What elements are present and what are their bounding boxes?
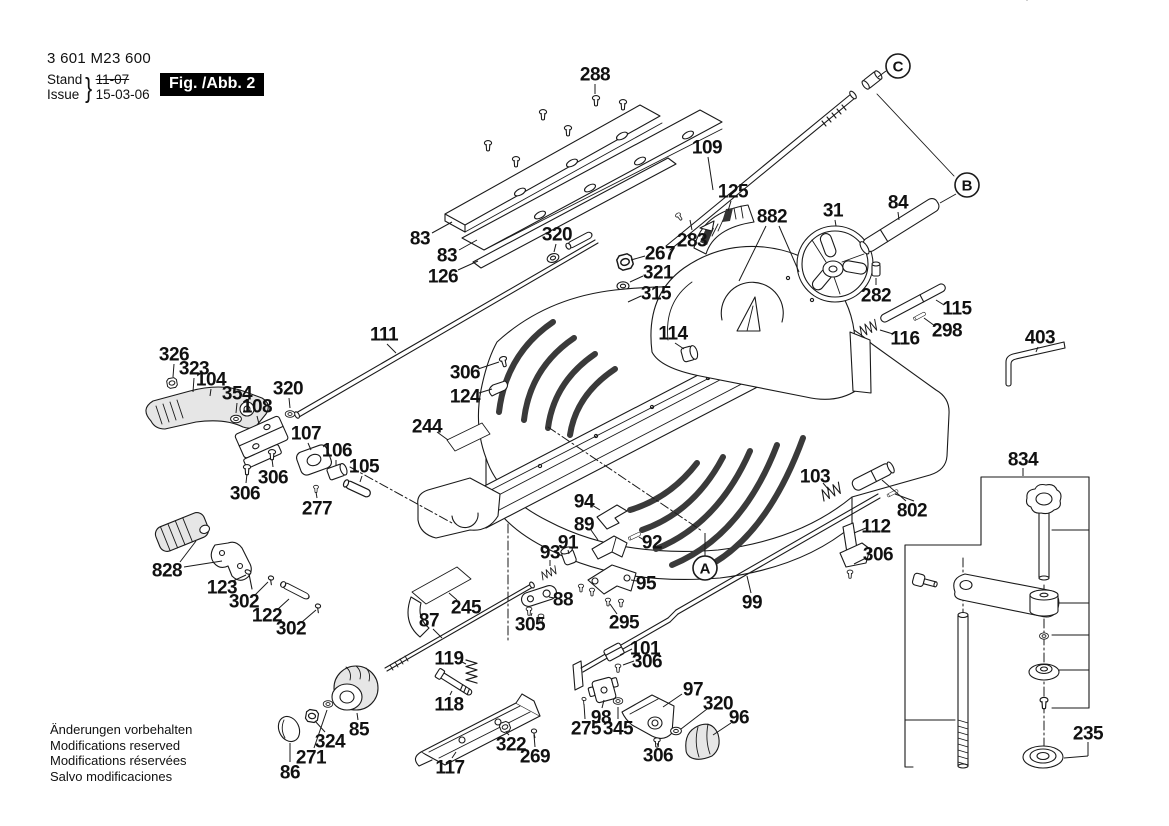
part-number-callout: 107 xyxy=(291,424,321,445)
callout-leader-line xyxy=(316,492,317,498)
part-number-callout: 295 xyxy=(609,613,640,634)
part-number-callout: 97 xyxy=(683,680,703,701)
part-number-callout: 84 xyxy=(888,193,909,214)
callout-leader-line xyxy=(940,194,956,203)
part-number-callout: 109 xyxy=(692,138,722,159)
part-number-callout: 288 xyxy=(580,65,610,86)
callout-leader-line xyxy=(747,576,751,593)
part-number-callout: 112 xyxy=(861,517,890,538)
callout-leader-line xyxy=(1064,756,1088,758)
part-number-callout: 235 xyxy=(1073,724,1104,745)
part-number-callout: 117 xyxy=(435,758,464,779)
part-number-callout: 103 xyxy=(800,467,830,488)
part-number-callout: 119 xyxy=(434,649,463,670)
part-number-callout: 115 xyxy=(942,299,972,320)
part-number-callout: 306 xyxy=(258,468,288,489)
part-number-callout: 802 xyxy=(897,501,927,522)
callout-leader-line xyxy=(173,364,174,377)
section-marker-label: A xyxy=(700,560,711,577)
callout-leader-line xyxy=(458,261,478,270)
part-number-callout: 91 xyxy=(558,533,579,554)
part-number-callout: 302 xyxy=(276,619,306,640)
part-number-callout: 306 xyxy=(450,363,480,384)
exploded-view-diagram: 288109C83831263201111258822833184B267321… xyxy=(0,0,1169,826)
part-number-callout: 111 xyxy=(370,325,399,346)
part-number-callout: 403 xyxy=(1025,328,1055,349)
callout-leader-line xyxy=(584,704,585,719)
part-number-callout: 118 xyxy=(434,695,463,716)
part-number-callout: 882 xyxy=(757,207,787,228)
part-number-callout: 86 xyxy=(280,763,300,784)
part-number-callout: 124 xyxy=(450,387,481,408)
part-number-callout: 306 xyxy=(632,652,662,673)
part-number-callout: 99 xyxy=(742,593,762,614)
part-number-callout: 94 xyxy=(574,492,595,513)
part-number-callout: 88 xyxy=(553,590,573,611)
part-number-callout: 305 xyxy=(515,615,546,636)
part-number-callout: 321 xyxy=(643,263,674,284)
part-number-callout: 96 xyxy=(729,708,749,729)
part-number-callout: 315 xyxy=(641,284,672,305)
part-number-callout: 277 xyxy=(302,499,332,520)
part-number-callout: 345 xyxy=(603,719,634,740)
part-number-callout: 105 xyxy=(349,457,380,478)
part-number-callout: 83 xyxy=(410,229,430,250)
part-number-callout: 116 xyxy=(890,329,919,350)
part-number-callout: 106 xyxy=(322,441,352,462)
callout-leader-line xyxy=(631,256,645,260)
part-number-callout: 31 xyxy=(823,201,844,222)
part-number-callout: 834 xyxy=(1008,450,1039,471)
part-number-callout: 320 xyxy=(542,225,572,246)
part-number-callout: 92 xyxy=(642,533,662,554)
part-number-callout: 298 xyxy=(932,321,962,342)
parts-diagram-page: 3 601 M23 600 Stand Issue } 11-07 15-03-… xyxy=(0,0,1169,826)
callout-leader-line xyxy=(708,157,713,190)
part-number-callout: 320 xyxy=(273,379,303,400)
part-number-callout: 126 xyxy=(428,267,458,288)
section-marker-label: C xyxy=(893,58,904,75)
callout-leader-line xyxy=(630,276,643,282)
part-number-callout: 269 xyxy=(520,747,550,768)
part-number-callout: 95 xyxy=(636,574,657,595)
part-number-callout: 267 xyxy=(645,244,675,265)
part-number-callout: 85 xyxy=(349,720,370,741)
part-number-callout: 108 xyxy=(242,397,272,418)
part-number-callout: 306 xyxy=(643,746,673,767)
part-number-callout: 271 xyxy=(296,748,327,769)
clamp-assembly-box-art xyxy=(905,0,1089,768)
section-marker-label: B xyxy=(962,177,973,194)
part-number-callout: 114 xyxy=(658,324,688,345)
part-number-callout: 87 xyxy=(419,611,439,632)
part-number-callout: 125 xyxy=(718,182,749,203)
part-number-callout: 89 xyxy=(574,515,594,536)
part-number-callout: 245 xyxy=(451,598,482,619)
part-number-callout: 275 xyxy=(571,719,602,740)
part-number-callout: 306 xyxy=(863,545,893,566)
part-number-callout: 306 xyxy=(230,484,260,505)
part-number-callout: 244 xyxy=(412,417,443,438)
part-number-callout: 282 xyxy=(861,286,891,307)
part-number-callout: 83 xyxy=(437,246,457,267)
part-number-callout: 283 xyxy=(677,231,707,252)
callout-leader-line xyxy=(432,222,452,233)
part-number-callout: 828 xyxy=(152,561,182,582)
